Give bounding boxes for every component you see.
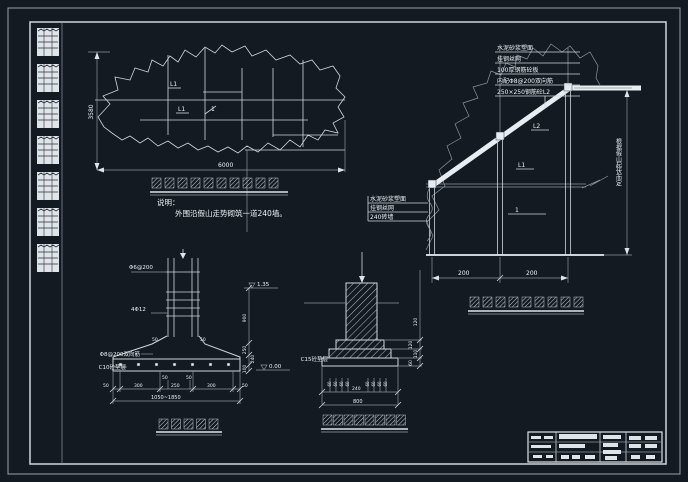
cad-drawing-sheet: 3580 6000 L1 L1 1 说明： 外围沿假山走势砌筑一道240墙。 — [0, 0, 688, 482]
dim-bot-300a: 300 — [134, 383, 143, 389]
section-label-l2: L2 — [533, 123, 540, 130]
footing-left-mesh-label: Φ8@200双向筋 — [100, 350, 141, 358]
footing-left-caption-hatched-title — [156, 419, 222, 435]
break-zigzag — [582, 176, 608, 188]
plan-label-l1-b: L1 — [178, 106, 185, 113]
titleblock-text-bars — [531, 434, 657, 460]
rockery-plan-view: 3580 6000 L1 L1 1 说明： 外围沿假山走势砌筑一道240墙。 — [88, 45, 345, 232]
dim-small-50a: 50 — [162, 375, 168, 381]
footing-detail-middle: C15砼垫层 120 120 110 60 60 60 60 60 60 60 … — [301, 252, 423, 432]
dim-t60-4: 60 — [345, 381, 350, 387]
plan-dimension-height: 3580 — [88, 52, 110, 170]
leader-wall-3: 240砖墙 — [370, 213, 393, 221]
pier-cushion-slab — [322, 358, 398, 366]
dim-right-900: 900 — [242, 314, 248, 323]
plan-label-l1-a: L1 — [170, 81, 177, 88]
dim-t60-6: 60 — [371, 381, 376, 387]
dim-t60-8: 60 — [383, 381, 388, 387]
dim-right-100: 100 — [242, 365, 248, 374]
plan-caption-hatched-title — [150, 178, 288, 195]
dim-mid-60: 60 — [408, 360, 414, 366]
plan-dimension-width: 6000 — [97, 162, 345, 173]
section-leader-top: 水泥砂浆塑面 挂钢丝网 100厚钢筋砼板 内配Φ8@200双向筋 250×250… — [495, 44, 580, 108]
notes-line1: 外围沿假山走势砌筑一道240墙。 — [175, 208, 287, 218]
footing-slab — [113, 359, 240, 371]
footing-left-bars-label: 4Φ12 — [131, 307, 146, 313]
dim-t60-1: 60 — [327, 381, 332, 387]
footing-mid-caption-hatched-title — [321, 415, 408, 432]
drawing-canvas: 3580 6000 L1 L1 1 说明： 外围沿假山走势砌筑一道240墙。 — [0, 0, 688, 482]
section-dim-bay2: 200 — [526, 270, 538, 277]
dim-right-250: 250 — [242, 346, 248, 355]
dim-right-240: 240 — [250, 355, 256, 364]
shoulder-dim-a: 50 — [152, 337, 158, 343]
dim-bot-50r: 50 — [242, 383, 248, 389]
plan-dim-height: 3580 — [88, 104, 95, 119]
dim-total-mid: 800 — [353, 399, 363, 405]
rockery-outline — [98, 45, 345, 153]
dim-bot-250: 250 — [171, 383, 180, 389]
dim-mid-120b: 120 — [408, 341, 414, 350]
elevation-mark-bottom: 0.00 — [256, 364, 290, 370]
notes-heading: 说明： — [157, 197, 180, 207]
elev-bottom-value: 0.00 — [269, 364, 282, 370]
title-block — [528, 432, 662, 462]
dim-t60-3: 60 — [339, 381, 344, 387]
section-label-1: 1 — [515, 207, 519, 214]
dim-small-50b: 50 — [186, 375, 192, 381]
dim-t60-7: 60 — [377, 381, 382, 387]
leader-top-3: 100厚钢筋砼板 — [497, 66, 538, 74]
section-label-l1: L1 — [518, 162, 525, 169]
pier-step-2 — [329, 349, 391, 358]
section-caption-hatched-title — [468, 297, 584, 314]
section-leader-wall: 水泥砂浆塑面 挂钢丝网 240砖墙 — [368, 195, 428, 221]
section-dim-bay1: 200 — [458, 270, 470, 277]
footing-mid-cushion-label: C15砼垫层 — [301, 355, 329, 363]
terrain-profile — [426, 44, 600, 250]
dim-mid-120a: 120 — [413, 318, 419, 327]
leader-top-5: 250×250钢筋砼L2 — [497, 88, 550, 96]
dim-total-left: 1050~1850 — [151, 395, 181, 401]
leader-wall-2: 挂钢丝网 — [370, 204, 394, 212]
section-bottom-dimension: 200 200 — [432, 257, 568, 283]
dim-t60-5: 60 — [365, 381, 370, 387]
leader-top-1: 水泥砂浆塑面 — [497, 44, 533, 52]
footing-left-right-dims: 900 250 240 100 — [242, 285, 256, 374]
elev-top-value: 1.35 — [257, 282, 270, 288]
elevation-mark-top: 1.35 — [244, 282, 278, 288]
leader-top-4: 内配Φ8@200双向筋 — [497, 77, 553, 85]
footing-left-bottom-dims: 50 50 50 300 250 300 50 1050~1850 — [103, 371, 248, 404]
brick-pier-hatched — [346, 283, 377, 340]
dim-bot-300b: 300 — [207, 383, 216, 389]
footing-detail-left: Φ6@200 4Φ12 50 50 Φ8@200双向筋 C10砼垫层 1.35 … — [99, 249, 290, 435]
plan-grid-lines — [95, 48, 345, 232]
leader-wall-1: 水泥砂浆塑面 — [370, 195, 406, 203]
dim-mid-240: 240 — [352, 386, 361, 392]
section-note-vertical: 根据假山起伏而定 — [615, 137, 622, 187]
leader-top-2: 挂钢丝网 — [497, 55, 521, 63]
plan-dim-width: 6000 — [218, 162, 233, 169]
footing-mid-bottom-dims: 60 60 60 60 60 60 60 60 240 800 — [319, 366, 401, 408]
sheet-borders — [8, 8, 680, 474]
dim-t60-2: 60 — [333, 381, 338, 387]
shoulder-dim-b: 50 — [200, 337, 206, 343]
rockery-section-view: 水泥砂浆塑面 挂钢丝网 100厚钢筋砼板 内配Φ8@200双向筋 250×250… — [368, 44, 641, 314]
pier-step-1 — [336, 340, 384, 349]
footing-left-tie-label: Φ6@200 — [129, 265, 153, 271]
section-right-dimension: 根据假山起伏而定 — [574, 88, 632, 255]
margin-revision-strip — [37, 28, 59, 272]
dim-bot-50l: 50 — [103, 383, 109, 389]
dim-mid-110: 110 — [413, 350, 419, 359]
slab-rebar-dots — [119, 363, 230, 366]
